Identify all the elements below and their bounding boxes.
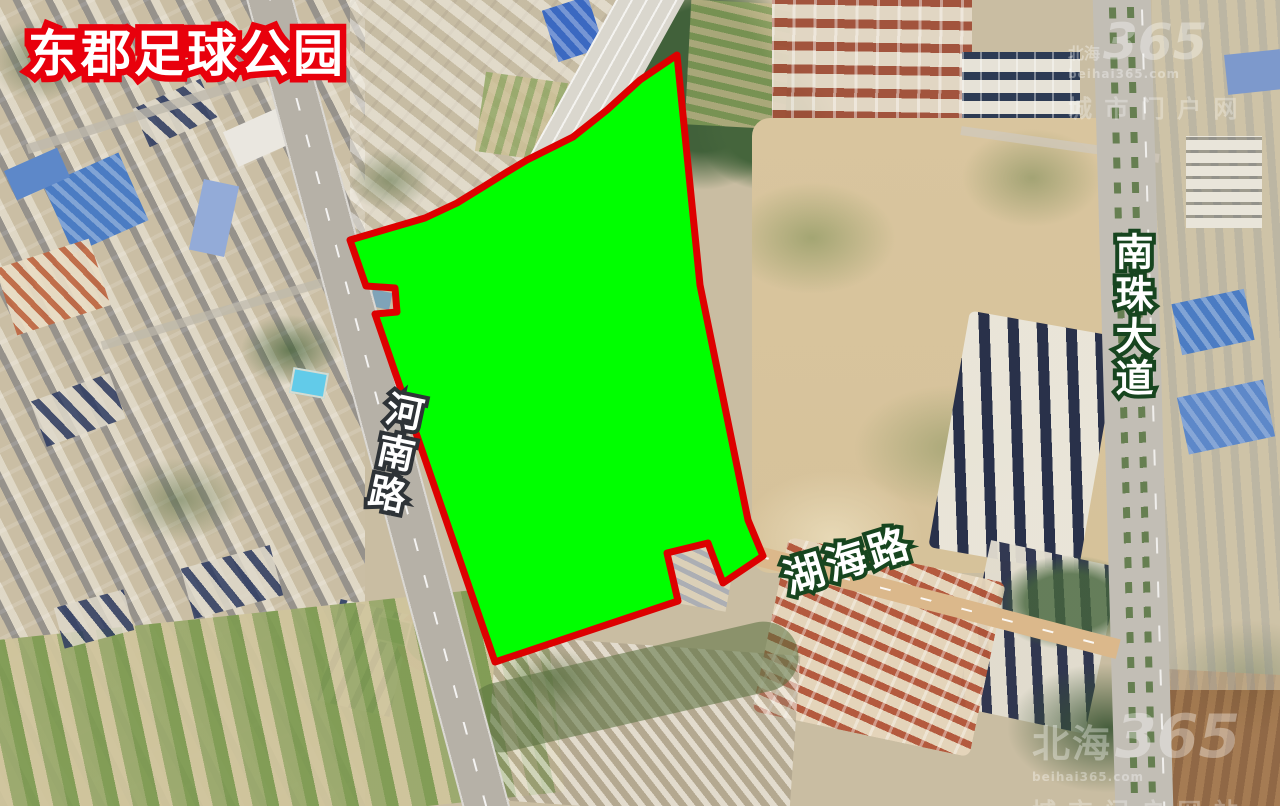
watermark-top-right: 北海 365 beihai365.com 城 市 门 户 网 <box>1068 20 1239 124</box>
watermark-brand-prefix: 北海 <box>1032 713 1112 768</box>
watermark-bottom-right: 北海 365 beihai365.com 城 市 门 户 网 站 <box>1032 710 1240 806</box>
watermark-domain: beihai365.com <box>1032 770 1240 784</box>
page-title: 东郡足球公园 <box>28 14 346 86</box>
watermark-brand-prefix: 北海 <box>1068 40 1100 64</box>
parcel-polygon <box>350 55 763 662</box>
watermark-brand-number: 365 <box>1115 710 1240 764</box>
watermark-brand: 北海 365 <box>1032 710 1240 768</box>
satellite-map: 河南路 南珠大道 湖海路 北海 365 beihai365.com 城 市 门 … <box>0 0 1280 806</box>
watermark-tagline: 城 市 门 户 网 站 <box>1032 792 1240 806</box>
watermark-domain: beihai365.com <box>1068 67 1239 81</box>
road-label-nanzhu: 南珠大道 <box>1104 232 1159 400</box>
watermark-brand: 北海 365 <box>1068 20 1239 65</box>
watermark-brand-number: 365 <box>1103 20 1207 65</box>
watermark-tagline: 城 市 门 户 网 <box>1068 89 1239 124</box>
